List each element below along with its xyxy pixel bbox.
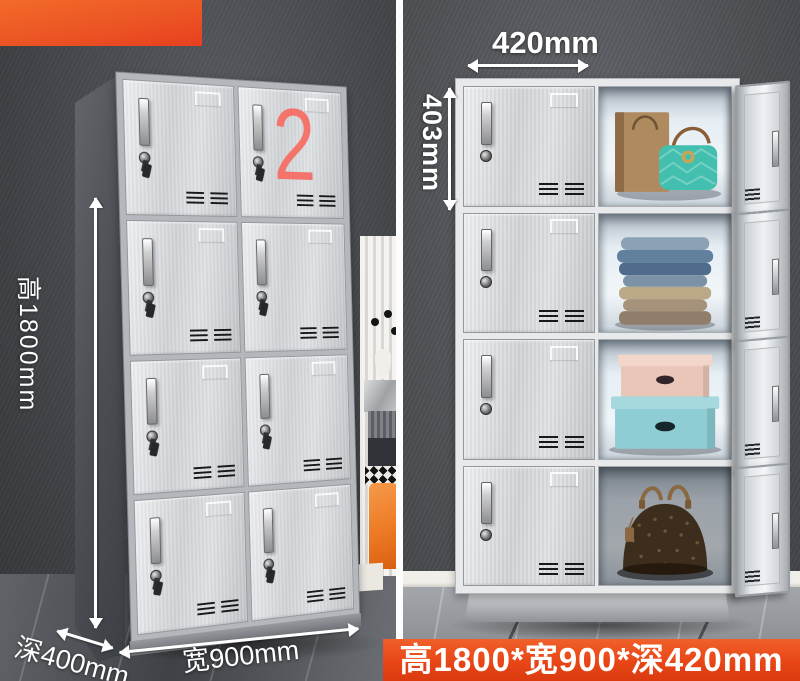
compartment-height-label: 403mm [416, 94, 447, 192]
compartment-height-arrow [448, 88, 451, 210]
door-handle [150, 517, 162, 565]
keys-icon [149, 442, 159, 457]
door-lock [480, 150, 492, 162]
locker-door [126, 220, 241, 356]
keys-icon [266, 569, 276, 583]
left-photo-scene: 2 [0, 0, 400, 681]
label-card-slot [202, 365, 228, 379]
keys-icon [141, 163, 151, 179]
keys-icon [259, 301, 269, 316]
locker-door [463, 213, 595, 334]
cabinet-row [463, 466, 732, 587]
orange-corner-badge [0, 0, 202, 46]
air-vents [186, 192, 229, 206]
shopping-bag-and-teal-handbag-icon [599, 87, 731, 206]
door-lock [480, 529, 492, 541]
air-vents [190, 329, 233, 343]
open-compartment-clothes [598, 213, 732, 334]
label-card-slot [550, 219, 578, 233]
label-card-slot [311, 361, 335, 375]
label-card-slot [198, 228, 224, 242]
left-cabinet-front: 2 [115, 71, 360, 643]
right-cabinet-front [455, 78, 740, 594]
air-vents [303, 457, 342, 472]
door-handle [481, 229, 492, 271]
door-handle [256, 240, 267, 285]
air-vents [745, 188, 760, 201]
door-handle [481, 355, 492, 397]
wall-peg-icon [371, 318, 379, 326]
locker-door [463, 466, 595, 587]
door-lock [143, 291, 155, 303]
label-card-slot [206, 501, 232, 517]
keys-icon [262, 436, 272, 451]
orange-stool [369, 483, 398, 569]
label-card-slot [550, 472, 578, 486]
right-photo-scene: 420mm 403mm [402, 0, 800, 681]
door-handle [146, 378, 158, 425]
door-lock [256, 291, 267, 303]
open-locker-door [735, 463, 790, 598]
door-lock [480, 403, 492, 415]
cabinet-row [463, 86, 732, 207]
locker-door: 2 [238, 86, 345, 219]
keys-icon [145, 303, 155, 318]
door-lock [139, 151, 151, 163]
open-compartment-boxes [598, 339, 732, 460]
door-handle [772, 385, 779, 422]
door-handle [772, 258, 779, 295]
door-lock [253, 156, 264, 168]
door-handle [481, 102, 492, 144]
locker-door [130, 357, 245, 496]
air-vents [745, 570, 760, 583]
scene-divider [396, 0, 403, 681]
keys-icon [153, 581, 163, 596]
locker-product-image: 2 [0, 0, 800, 681]
door-handle [481, 482, 492, 524]
door-handle [253, 105, 264, 151]
air-vents [197, 599, 239, 616]
storage-boxes-icon [599, 340, 731, 459]
locker-door [248, 484, 354, 622]
compartment-width-arrow [468, 64, 588, 67]
label-card-slot [550, 93, 578, 107]
compartment-width-label: 420mm [492, 25, 599, 61]
cabinet-row [463, 339, 732, 460]
locker-door [245, 354, 351, 487]
marble-counter [364, 380, 399, 412]
label-card-slot [550, 346, 578, 360]
door-handle [142, 238, 154, 285]
door-handle [772, 512, 779, 549]
air-vents [745, 443, 760, 456]
locker-door [122, 79, 237, 217]
locker-door [463, 339, 595, 460]
air-vents [745, 316, 760, 329]
door-lock [480, 276, 492, 288]
label-card-slot [315, 492, 339, 507]
door-handle [260, 374, 271, 420]
label-card-slot [308, 230, 332, 243]
monogram-handbag-icon [599, 467, 731, 586]
height-dimension-label: 高1800mm [12, 276, 48, 412]
air-vents [539, 436, 585, 449]
locker-door [241, 222, 347, 352]
ribbed-cabinet [368, 411, 399, 439]
locker-door [463, 86, 595, 207]
locker-door [134, 492, 248, 635]
open-locker-door [735, 81, 790, 216]
wall-peg-icon [384, 310, 392, 318]
door-handle [138, 98, 150, 146]
door-handle [263, 507, 274, 553]
dimensions-banner: 高1800*宽900*深420mm [383, 639, 800, 681]
locker-number: 2 [272, 92, 317, 196]
air-vents [539, 563, 585, 576]
folded-clothes-icon [599, 214, 731, 333]
air-vents [539, 310, 585, 323]
cabinet-base [465, 594, 730, 622]
open-locker-door [735, 336, 790, 471]
air-vents [300, 327, 339, 340]
label-card-slot [195, 91, 221, 106]
height-dimension-arrow [94, 198, 97, 628]
cabinet-row [463, 213, 732, 334]
open-locker-door [735, 209, 790, 344]
door-handle [772, 130, 779, 167]
air-vents [193, 464, 235, 479]
air-vents [539, 183, 585, 196]
air-vents [307, 587, 346, 604]
open-compartment-bags [598, 86, 732, 207]
dark-drawer [368, 438, 399, 468]
keys-icon [255, 167, 265, 182]
open-compartment-handbag [598, 466, 732, 587]
